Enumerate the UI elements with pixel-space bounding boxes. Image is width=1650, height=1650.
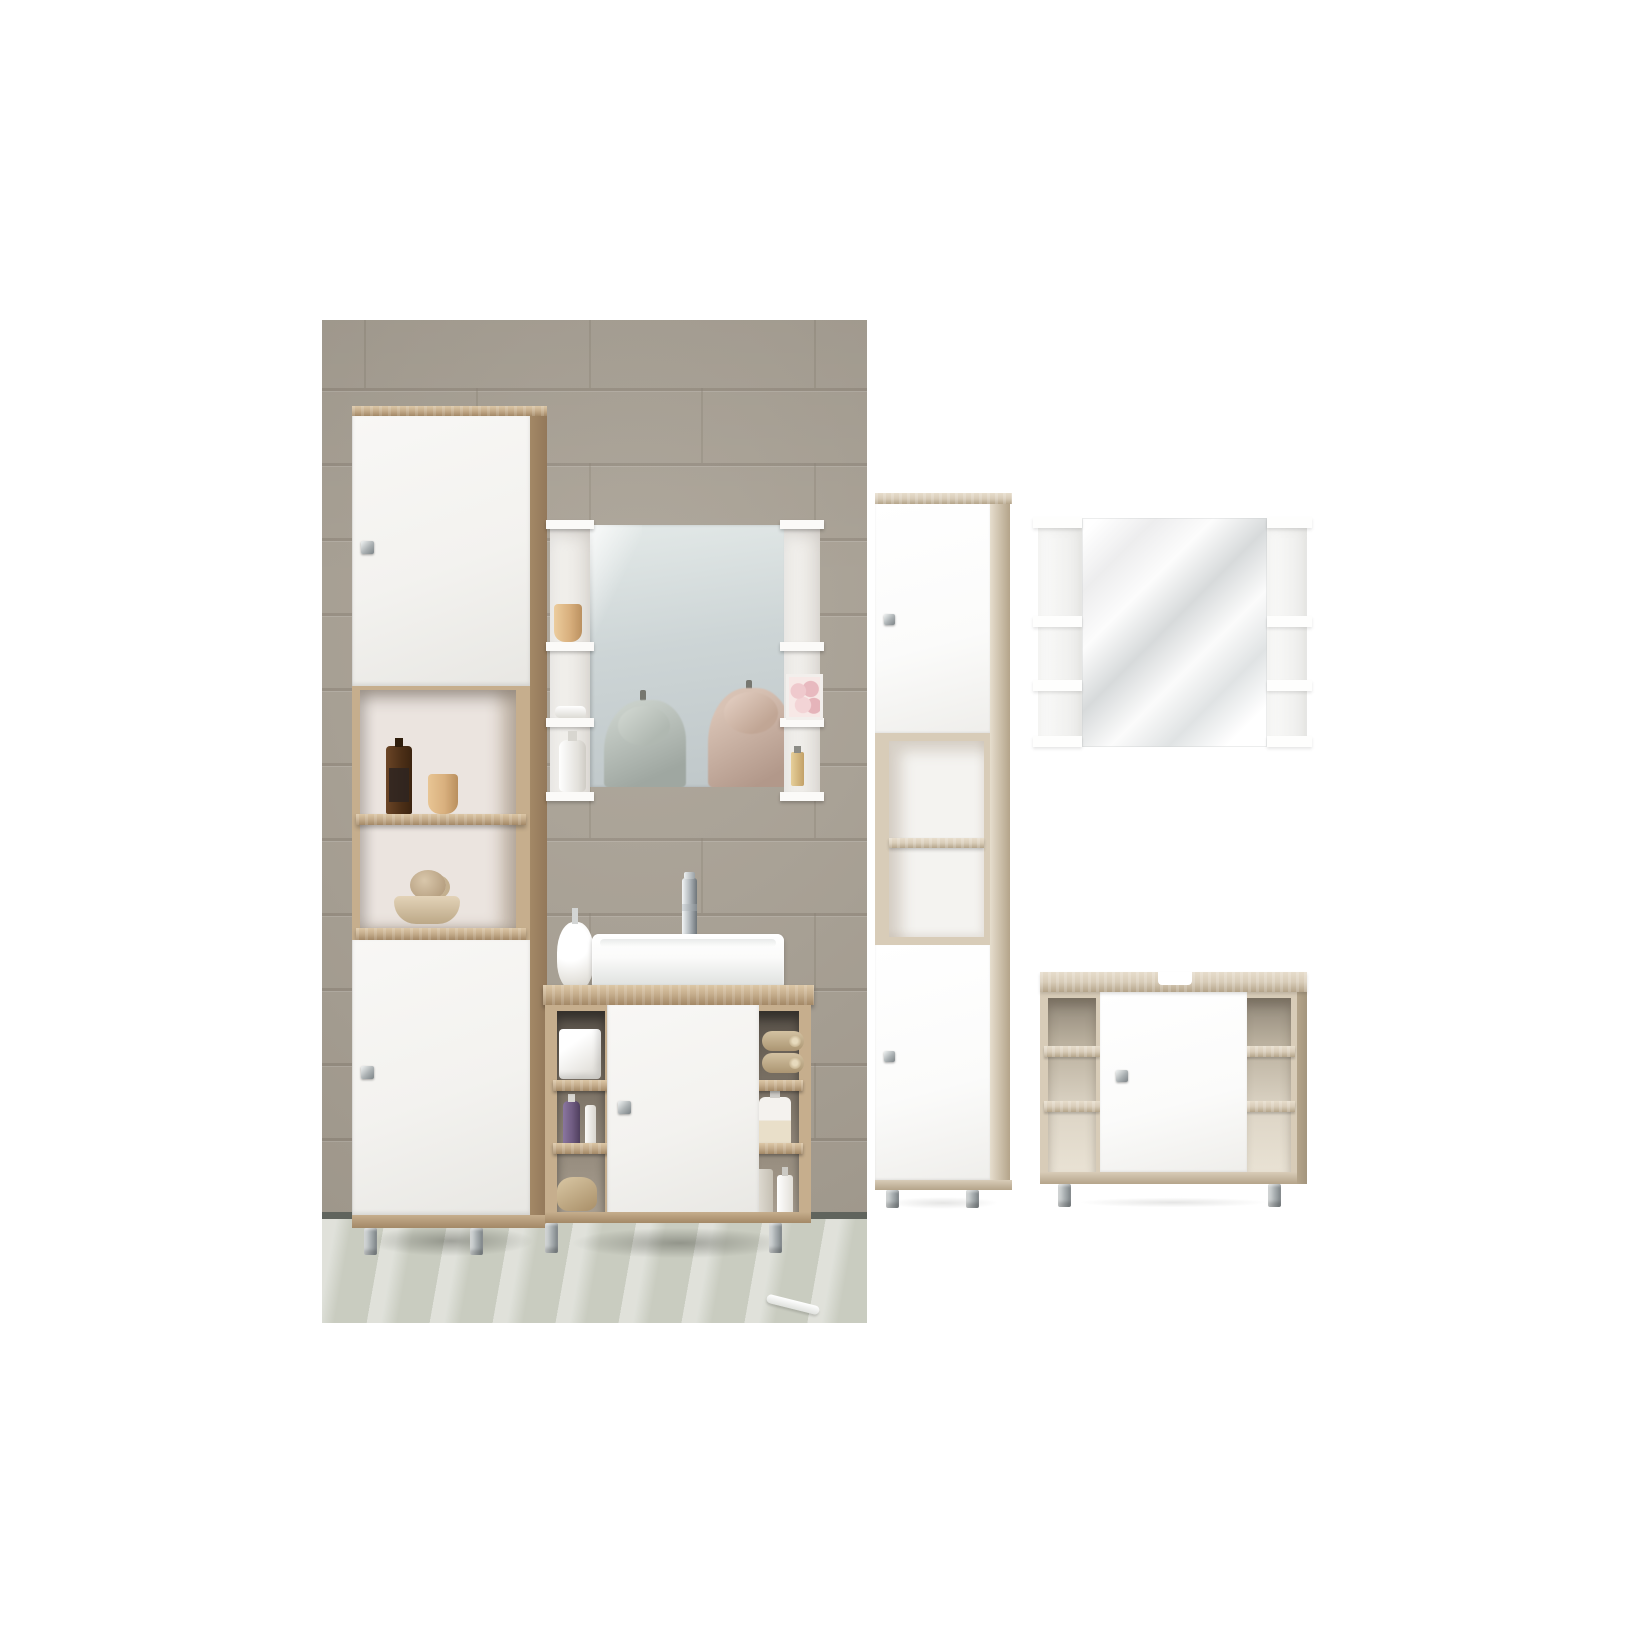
vanity-render-side-panel bbox=[1297, 992, 1307, 1184]
lower-door-knob bbox=[361, 1066, 374, 1079]
chrome-faucet bbox=[682, 878, 697, 940]
tall-cabinet-photo bbox=[350, 406, 547, 1255]
tile-grout-joint bbox=[701, 388, 703, 463]
flower-gift-box bbox=[786, 674, 823, 720]
hanging-robe-gray-reflection bbox=[604, 700, 686, 787]
vanity-leg bbox=[1268, 1184, 1281, 1207]
shelf-board bbox=[1033, 680, 1082, 691]
vanity-render-top-panel bbox=[1040, 972, 1307, 992]
soap-dispenser bbox=[557, 922, 594, 990]
shelf-board bbox=[1033, 736, 1082, 747]
tall-cabinet-open-shelves bbox=[352, 686, 530, 940]
mirror-with-shelves-render bbox=[1033, 517, 1312, 749]
shelf-board bbox=[780, 642, 824, 651]
shelf-board bbox=[1267, 680, 1312, 691]
shelf-board bbox=[546, 642, 594, 651]
mirror-shelf-unit-photo bbox=[550, 520, 820, 801]
lifestyle-photo bbox=[322, 320, 867, 1323]
upper-door-knob bbox=[361, 541, 374, 554]
oak-shelf-bottom bbox=[356, 928, 526, 940]
tall-cabinet-top-panel bbox=[352, 406, 547, 416]
vanity-door-knob bbox=[618, 1101, 631, 1114]
vanity-shelf bbox=[1239, 1046, 1295, 1057]
vanity-top-panel bbox=[543, 985, 814, 1005]
vanity-render-right-cubbies bbox=[1243, 998, 1291, 1172]
shelf-board bbox=[546, 520, 594, 529]
tile-grout-joint bbox=[814, 320, 816, 388]
vanity-leg bbox=[545, 1223, 558, 1253]
shelf-board bbox=[780, 520, 824, 529]
vanity-render-plinth bbox=[1040, 1172, 1297, 1184]
shelf-board bbox=[1033, 517, 1082, 528]
vanity-shelf bbox=[553, 1143, 609, 1154]
siphon-cutout bbox=[1158, 972, 1192, 985]
product-image-canvas bbox=[0, 0, 1650, 1650]
vanity-door bbox=[607, 1005, 759, 1220]
render-shadow bbox=[1048, 1196, 1298, 1209]
vanity-shelf bbox=[1044, 1046, 1100, 1057]
vanity-plinth bbox=[545, 1212, 811, 1223]
soap-dish bbox=[555, 706, 586, 718]
vanity-shelf bbox=[1239, 1101, 1295, 1112]
tall-cabinet-render-open-shelves bbox=[875, 733, 990, 945]
tile-grout-joint bbox=[814, 913, 816, 988]
cosmetic-tube bbox=[585, 1105, 596, 1148]
tall-cabinet-render-top-panel bbox=[875, 493, 1012, 504]
vanity-shelf bbox=[553, 1080, 609, 1091]
vanity-body bbox=[545, 1005, 811, 1221]
perfume-bottle bbox=[791, 752, 804, 786]
tile-grout-joint bbox=[814, 1063, 816, 1138]
lotion-pump-bottle bbox=[559, 740, 586, 792]
lower-door-knob bbox=[884, 1051, 895, 1062]
soap-pump-bottle bbox=[759, 1097, 791, 1149]
oak-shelf bbox=[356, 814, 526, 825]
tissue-box bbox=[559, 1029, 601, 1079]
vanity-render-door bbox=[1100, 992, 1247, 1172]
clear-bottle bbox=[777, 1175, 793, 1215]
ceramic-cup bbox=[428, 774, 458, 814]
vanity-leg bbox=[769, 1223, 782, 1253]
tall-cabinet-render-upper-door bbox=[875, 504, 990, 733]
mirror-render-right-column bbox=[1267, 517, 1307, 747]
shelf-board bbox=[1267, 736, 1312, 747]
bottle-label bbox=[389, 768, 409, 802]
rolled-towel bbox=[762, 1031, 804, 1051]
amber-glass-bottle bbox=[386, 746, 412, 814]
tall-cabinet-render-lower-door bbox=[875, 945, 990, 1180]
tile-grout-line bbox=[322, 388, 867, 391]
vanity-render-body bbox=[1040, 992, 1297, 1184]
tall-cabinet-render-side-panel bbox=[990, 503, 1010, 1183]
cabinet-leg bbox=[886, 1190, 899, 1208]
cabinet-leg bbox=[470, 1228, 483, 1255]
cabinet-leg bbox=[966, 1190, 979, 1208]
decor-bowl bbox=[394, 896, 460, 924]
rolled-towel bbox=[762, 1053, 804, 1073]
cabinet-leg bbox=[364, 1228, 377, 1255]
vanity-shelf bbox=[1044, 1101, 1100, 1112]
shelf-board bbox=[1033, 616, 1082, 627]
tall-cabinet-render-plinth bbox=[875, 1180, 1012, 1190]
under-sink-vanity-photo bbox=[543, 828, 814, 1255]
ceramic-cup-small bbox=[554, 604, 582, 642]
shelf-board bbox=[546, 792, 594, 801]
vanity-leg bbox=[1058, 1184, 1071, 1207]
shelf-board bbox=[1267, 517, 1312, 528]
shelf-board bbox=[546, 718, 594, 727]
tile-grout-joint bbox=[589, 320, 591, 388]
shelf-board bbox=[780, 792, 824, 801]
tile-grout-joint bbox=[364, 320, 366, 388]
upper-door-knob bbox=[884, 614, 895, 625]
shelf-board bbox=[1267, 616, 1312, 627]
mirror-render-glass bbox=[1082, 518, 1267, 747]
vanity-door-knob bbox=[1116, 1070, 1128, 1082]
wooden-brush bbox=[557, 1177, 597, 1211]
under-sink-vanity-render bbox=[1040, 972, 1310, 1209]
mirror-glass bbox=[590, 525, 784, 787]
purple-cosmetic-bottle bbox=[563, 1101, 580, 1148]
mirror-render-left-column bbox=[1038, 517, 1082, 747]
tall-cabinet-lower-door bbox=[352, 940, 530, 1215]
tall-cabinet-upper-door bbox=[352, 416, 530, 686]
hanging-robe-pink-reflection bbox=[708, 688, 784, 787]
tall-cabinet-render bbox=[868, 493, 1018, 1215]
oak-shelf bbox=[889, 838, 984, 848]
vanity-render-left-cubbies bbox=[1048, 998, 1096, 1172]
tall-cabinet-plinth bbox=[352, 1215, 547, 1228]
vessel-basin bbox=[592, 934, 784, 992]
